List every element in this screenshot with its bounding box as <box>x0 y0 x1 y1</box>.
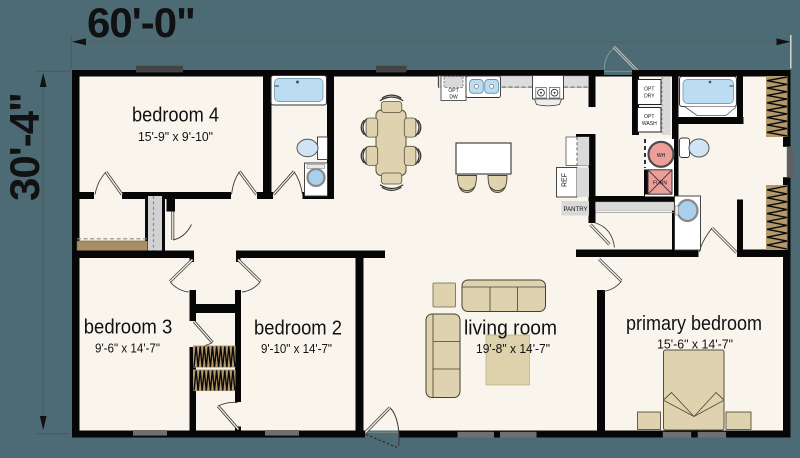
svg-text:WH: WH <box>657 153 666 159</box>
svg-text:OPT: OPT <box>644 87 654 93</box>
svg-text:9'-6" x 14'-7": 9'-6" x 14'-7" <box>95 341 160 356</box>
svg-text:OPT: OPT <box>644 114 654 120</box>
svg-text:9'-10" x 14'-7": 9'-10" x 14'-7" <box>261 341 332 356</box>
svg-text:WASH: WASH <box>642 121 657 127</box>
svg-text:REF: REF <box>562 173 569 187</box>
svg-text:DW: DW <box>449 94 458 100</box>
svg-text:bedroom 2: bedroom 2 <box>254 317 342 340</box>
svg-text:DRY: DRY <box>644 94 655 100</box>
svg-text:bedroom 3: bedroom 3 <box>84 316 173 339</box>
svg-text:15'-9" x 9'-10": 15'-9" x 9'-10" <box>138 129 213 144</box>
svg-text:FURN: FURN <box>653 181 667 187</box>
svg-text:OPT: OPT <box>448 88 458 94</box>
svg-text:PANTRY: PANTRY <box>564 206 589 213</box>
svg-text:15'-6" x 14'-7": 15'-6" x 14'-7" <box>657 337 733 352</box>
svg-text:bedroom 4: bedroom 4 <box>132 104 219 127</box>
svg-text:living room: living room <box>464 317 557 340</box>
svg-text:primary bedroom: primary bedroom <box>626 312 762 335</box>
svg-text:60'-0": 60'-0" <box>87 0 195 46</box>
svg-text:30'-4": 30'-4" <box>1 93 48 201</box>
svg-text:19'-8" x 14'-7": 19'-8" x 14'-7" <box>476 341 550 356</box>
